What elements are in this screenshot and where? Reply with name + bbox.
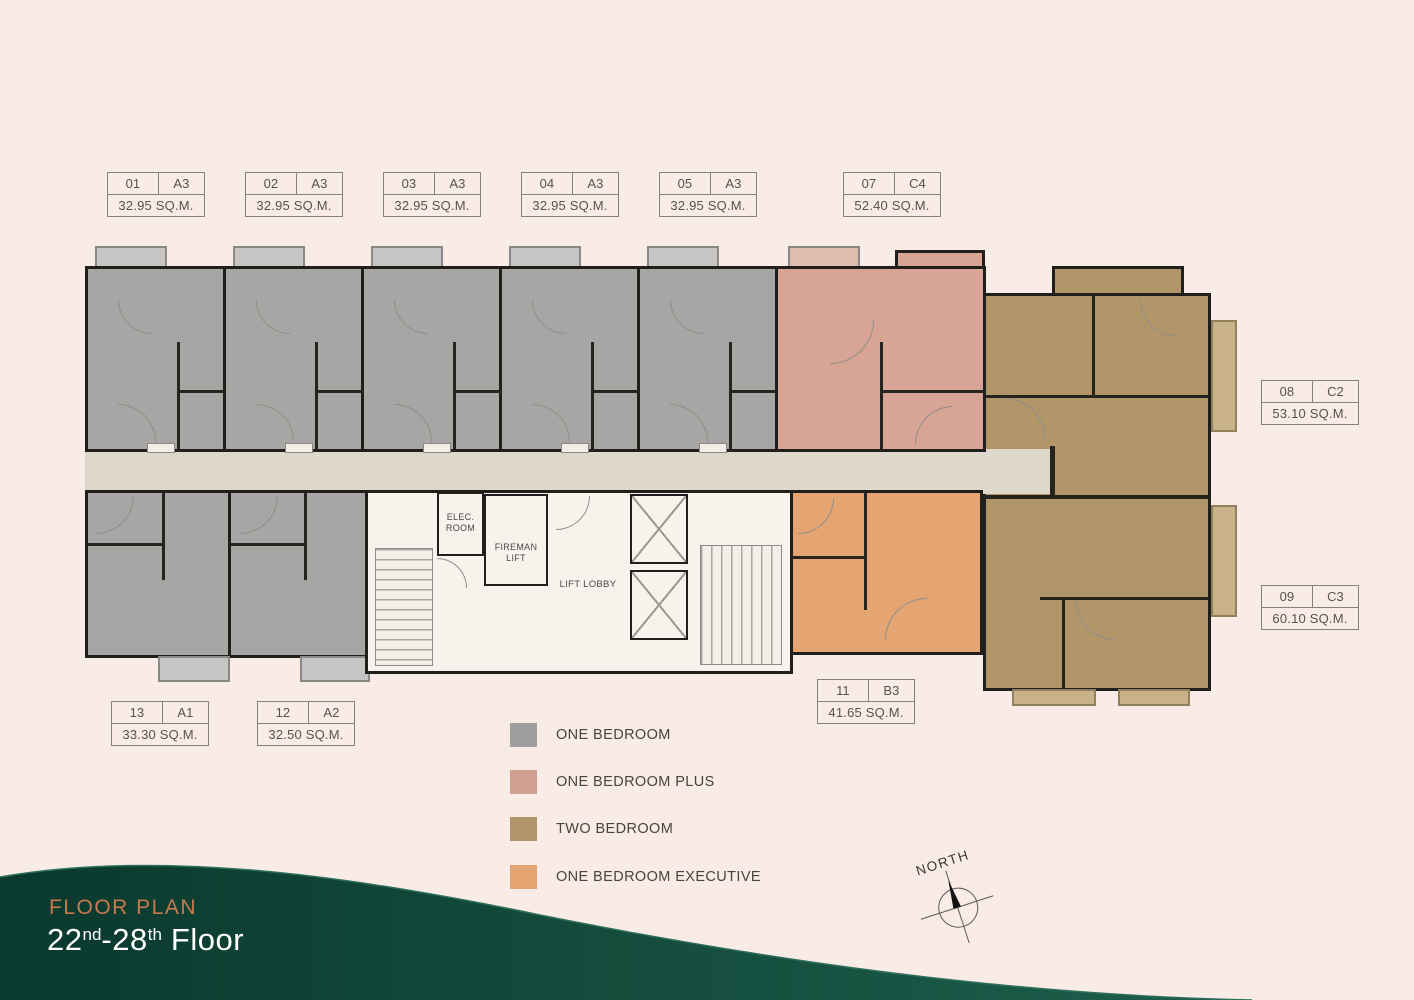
- balcony-09: [1211, 505, 1237, 617]
- balcony-12: [300, 656, 370, 682]
- door-gap-01: [147, 443, 175, 453]
- legend-item-one-bedroom: ONE BEDROOM: [510, 722, 671, 748]
- legend-item-one-bedroom-plus: ONE BEDROOM PLUS: [510, 769, 715, 795]
- floor-plan-drawing: ELEC. ROOM FIREMAN LIFT LIFT LOBBY: [0, 0, 1414, 1000]
- elec-room-label: ELEC. ROOM: [437, 494, 484, 552]
- unit-05-block: [637, 266, 778, 452]
- legend-swatch-two-bedroom: [510, 817, 537, 841]
- balcony-09-bottom-2: [1118, 689, 1190, 706]
- wall-u11-v: [864, 492, 867, 610]
- wall-u02-h: [315, 390, 364, 393]
- wall-u04-h: [591, 390, 640, 393]
- unit-08-top-tab: [1052, 266, 1184, 296]
- wall-u07-h: [880, 390, 986, 393]
- door-gap-02: [285, 443, 313, 453]
- wall-u12-h: [230, 543, 307, 546]
- wall-u08-h: [985, 395, 1209, 398]
- legend-item-two-bedroom: TWO BEDROOM: [510, 816, 673, 842]
- unit-label-11: 11B3 41.65 SQ.M.: [817, 679, 915, 724]
- door-gap-04: [561, 443, 589, 453]
- wall-u01-h: [177, 390, 226, 393]
- unit-label-07: 07C4 52.40 SQ.M.: [843, 172, 941, 217]
- unit-01-block: [85, 266, 226, 452]
- floor-range: 22nd-28thFloor: [47, 922, 244, 958]
- wall-u01-v: [177, 342, 180, 452]
- corridor: [85, 449, 1054, 494]
- banner-text: FLOOR PLAN 22nd-28thFloor: [47, 896, 244, 958]
- unit-04-block: [499, 266, 640, 452]
- wall-u11-h: [792, 556, 866, 559]
- door-gap-03: [423, 443, 451, 453]
- legend-swatch-one-bedroom-plus: [510, 770, 537, 794]
- unit-label-05: 05A3 32.95 SQ.M.: [659, 172, 757, 217]
- banner-eyebrow: FLOOR PLAN: [49, 896, 244, 920]
- floor-plan-page: ELEC. ROOM FIREMAN LIFT LIFT LOBBY: [0, 0, 1414, 1000]
- wall-u02-v: [315, 342, 318, 452]
- wall-u09-h: [1040, 597, 1209, 600]
- wall-u04-v: [591, 342, 594, 452]
- wall-u05-v: [729, 342, 732, 452]
- stairs-right: [700, 545, 782, 665]
- balcony-09-bottom-1: [1012, 689, 1096, 706]
- unit-label-04: 04A3 32.95 SQ.M.: [521, 172, 619, 217]
- unit-label-12: 12A2 32.50 SQ.M.: [257, 701, 355, 746]
- unit-label-08: 08C2 53.10 SQ.M.: [1261, 380, 1359, 425]
- unit-label-09: 09C3 60.10 SQ.M.: [1261, 585, 1359, 630]
- legend-swatch-one-bedroom: [510, 723, 537, 747]
- unit-label-03: 03A3 32.95 SQ.M.: [383, 172, 481, 217]
- wall-u08-v: [1092, 295, 1095, 397]
- balcony-08: [1211, 320, 1237, 432]
- unit-label-13: 13A1 33.30 SQ.M.: [111, 701, 209, 746]
- wall-u13-h: [87, 543, 165, 546]
- unit-03-block: [361, 266, 502, 452]
- wall-u05-h: [729, 390, 778, 393]
- wall-u07-v: [880, 342, 883, 452]
- corridor-end-wall: [1050, 446, 1055, 497]
- stairs-left: [375, 548, 433, 666]
- wall-u12-v: [304, 492, 307, 580]
- unit-label-01: 01A3 32.95 SQ.M.: [107, 172, 205, 217]
- balcony-13: [158, 656, 230, 682]
- wall-u13-v: [162, 492, 165, 580]
- unit-label-02: 02A3 32.95 SQ.M.: [245, 172, 343, 217]
- wall-u03-h: [453, 390, 502, 393]
- wall-u09-v: [1062, 597, 1065, 689]
- fireman-lift-label: FIREMAN LIFT: [484, 524, 548, 582]
- wall-08-09-divider: [983, 495, 1211, 499]
- wall-u03-v: [453, 342, 456, 452]
- door-gap-05: [699, 443, 727, 453]
- lift-shaft-2: [630, 570, 688, 640]
- lift-lobby-label: LIFT LOBBY: [548, 560, 628, 610]
- unit-02-block: [223, 266, 364, 452]
- lift-shaft-1: [630, 494, 688, 564]
